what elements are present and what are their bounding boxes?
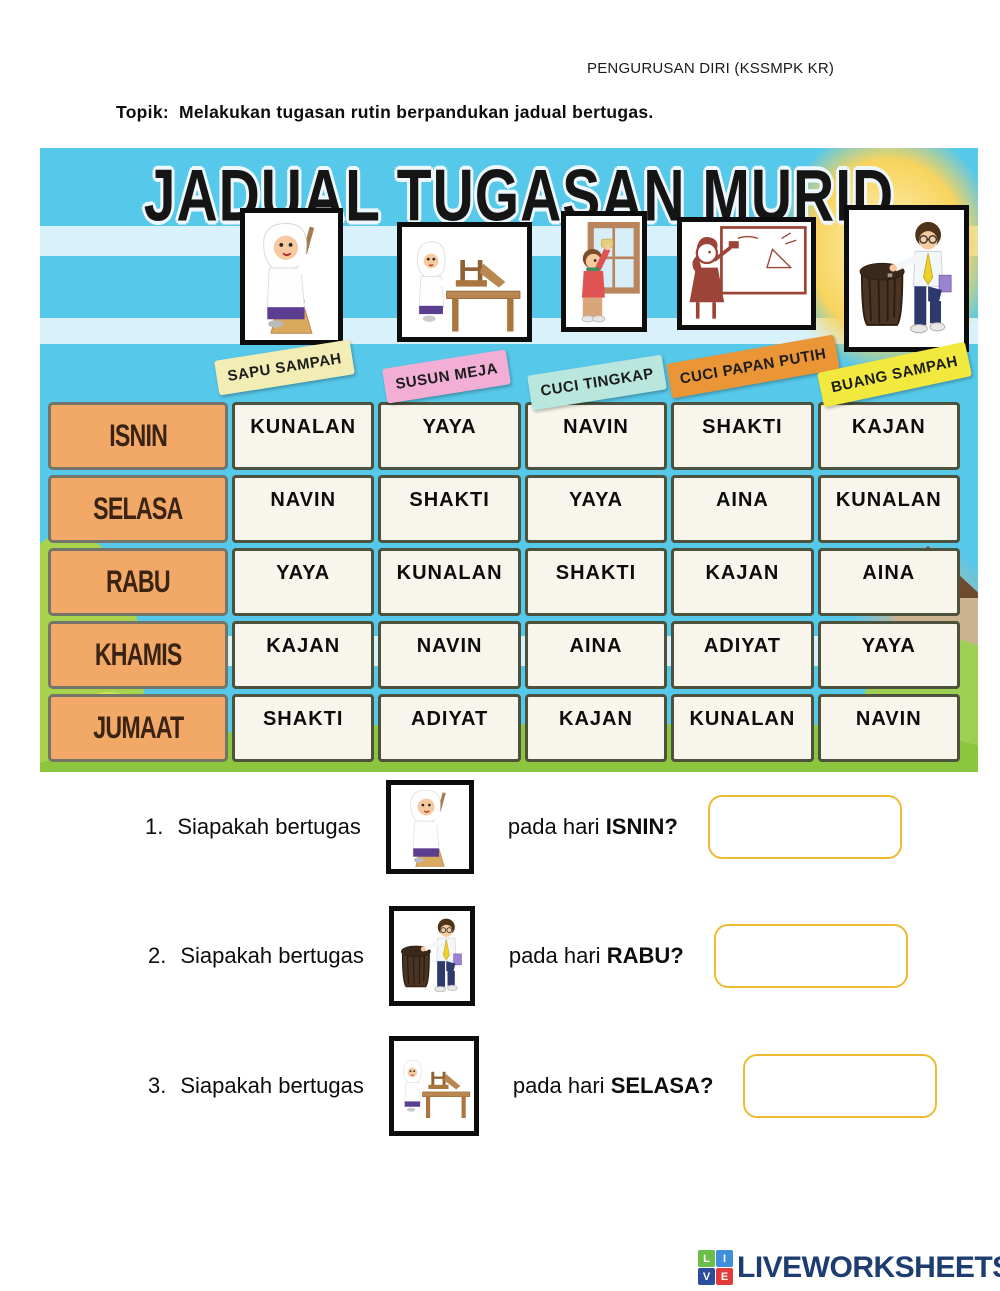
- day-cell-jumaat: JUMAAT: [48, 694, 228, 762]
- logo-square-v: V: [698, 1268, 715, 1285]
- question-1: 1.Siapakah bertugas pada hari ISNIN?: [145, 780, 902, 874]
- girl-arranging-table-image: [394, 1041, 474, 1131]
- schedule-cell: KAJAN: [525, 694, 667, 762]
- question-number: 3.: [148, 1073, 166, 1098]
- schedule-cell: ADIYAT: [378, 694, 520, 762]
- schedule-cell: SHAKTI: [232, 694, 374, 762]
- question-number: 1.: [145, 814, 163, 839]
- day-cell-isnin: ISNIN: [48, 402, 228, 470]
- schedule-cell: NAVIN: [232, 475, 374, 543]
- task-tag-sapu-sampah: SAPU SAMPAH: [214, 339, 355, 395]
- schedule-cell: SHAKTI: [378, 475, 520, 543]
- question-day: SELASA: [611, 1073, 700, 1098]
- schedule-cell: KUNALAN: [232, 402, 374, 470]
- task-tag-susun-meja: SUSUN MEJA: [382, 349, 511, 403]
- schedule-cell: YAYA: [525, 475, 667, 543]
- task-image-frame: [240, 208, 343, 345]
- schedule-cell: AINA: [818, 548, 960, 616]
- task-tag-cuci-papan-putih: CUCI PAPAN PUTIH: [666, 334, 840, 398]
- task-image-frame: [844, 205, 969, 352]
- day-cell-khamis: KHAMIS: [48, 621, 228, 689]
- topic-text: Melakukan tugasan rutin berpandukan jadu…: [179, 102, 654, 122]
- liveworksheets-footer: L I V E LIVEWORKSHEETS: [698, 1250, 1000, 1285]
- question-post-text: pada hari RABU?: [509, 943, 684, 969]
- schedule-cell: AINA: [671, 475, 813, 543]
- question-number: 2.: [148, 943, 166, 968]
- question-post-text: pada hari ISNIN?: [508, 814, 678, 840]
- day-cell-selasa: SELASA: [48, 475, 228, 543]
- worksheet-page: PENGURUSAN DIRI (KSSMPK KR) Topik:Melaku…: [0, 0, 1000, 1291]
- girl-sweeping-image: [391, 785, 469, 869]
- day-cell-rabu: RABU: [48, 548, 228, 616]
- boy-throwing-trash-image: [394, 911, 470, 1001]
- schedule-cell: SHAKTI: [671, 402, 813, 470]
- duty-roster-poster: JADUAL TUGASAN MURID: [40, 148, 978, 772]
- question-day: ISNIN: [606, 814, 665, 839]
- schedule-cell: NAVIN: [378, 621, 520, 689]
- schedule-cell: KUNALAN: [378, 548, 520, 616]
- schedule-cell: ADIYAT: [671, 621, 813, 689]
- question-text: 1.Siapakah bertugas: [145, 814, 361, 840]
- schedule-cell: YAYA: [818, 621, 960, 689]
- answer-box-3[interactable]: [743, 1054, 937, 1118]
- answer-box-1[interactable]: [708, 795, 902, 859]
- schedule-cell: KUNALAN: [671, 694, 813, 762]
- schedule-cell: KAJAN: [818, 402, 960, 470]
- question-text: 2.Siapakah bertugas: [148, 943, 364, 969]
- girl-cleaning-whiteboard-image: [682, 222, 811, 325]
- girl-arranging-table-image: [402, 227, 527, 337]
- schedule-cell: NAVIN: [525, 402, 667, 470]
- question-3: 3.Siapakah bertugas pada har: [148, 1036, 937, 1136]
- brand-text: LIVEWORKSHEETS: [737, 1251, 1000, 1285]
- schedule-cell: AINA: [525, 621, 667, 689]
- schedule-cell: YAYA: [232, 548, 374, 616]
- schedule-cell: NAVIN: [818, 694, 960, 762]
- document-label: PENGURUSAN DIRI (KSSMPK KR): [587, 60, 834, 77]
- question-image: [389, 906, 475, 1006]
- question-image: [386, 780, 474, 874]
- boy-cleaning-window-image: [566, 216, 642, 327]
- logo-square-l: L: [698, 1250, 715, 1267]
- question-post-text: pada hari SELASA?: [513, 1073, 714, 1099]
- girl-sweeping-image: [245, 213, 338, 340]
- question-text: 3.Siapakah bertugas: [148, 1073, 364, 1099]
- topic-line: Topik:Melakukan tugasan rutin berpanduka…: [116, 102, 654, 123]
- task-image-frame: [397, 222, 532, 342]
- question-2: 2.Siapakah bertugas: [148, 906, 908, 1006]
- boy-throwing-trash-image: [849, 210, 964, 347]
- schedule-cell: KAJAN: [671, 548, 813, 616]
- answer-box-2[interactable]: [714, 924, 908, 988]
- logo-square-e: E: [716, 1268, 733, 1285]
- topic-label: Topik:: [116, 102, 169, 122]
- question-image: [389, 1036, 479, 1136]
- schedule-cell: YAYA: [378, 402, 520, 470]
- duty-schedule-table: ISNIN KUNALAN YAYA NAVIN SHAKTI KAJAN SE…: [48, 402, 960, 762]
- task-image-frame: [677, 217, 816, 330]
- liveworksheets-logo-icon: L I V E: [698, 1250, 733, 1285]
- schedule-cell: KUNALAN: [818, 475, 960, 543]
- task-image-frame: [561, 211, 647, 332]
- schedule-cell: SHAKTI: [525, 548, 667, 616]
- schedule-cell: KAJAN: [232, 621, 374, 689]
- logo-square-i: I: [716, 1250, 733, 1267]
- question-day: RABU: [607, 943, 671, 968]
